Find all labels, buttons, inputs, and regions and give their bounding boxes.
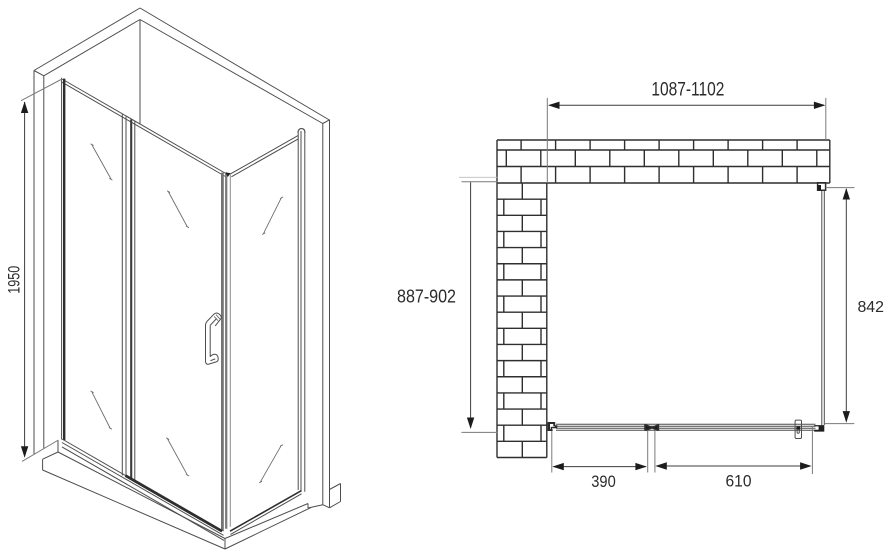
- svg-text:610: 610: [726, 471, 752, 490]
- svg-text:390: 390: [591, 472, 616, 491]
- svg-text:1950: 1950: [4, 266, 23, 294]
- svg-text:1087-1102: 1087-1102: [651, 80, 724, 101]
- svg-text:842: 842: [857, 299, 884, 316]
- svg-text:887-902: 887-902: [397, 287, 456, 307]
